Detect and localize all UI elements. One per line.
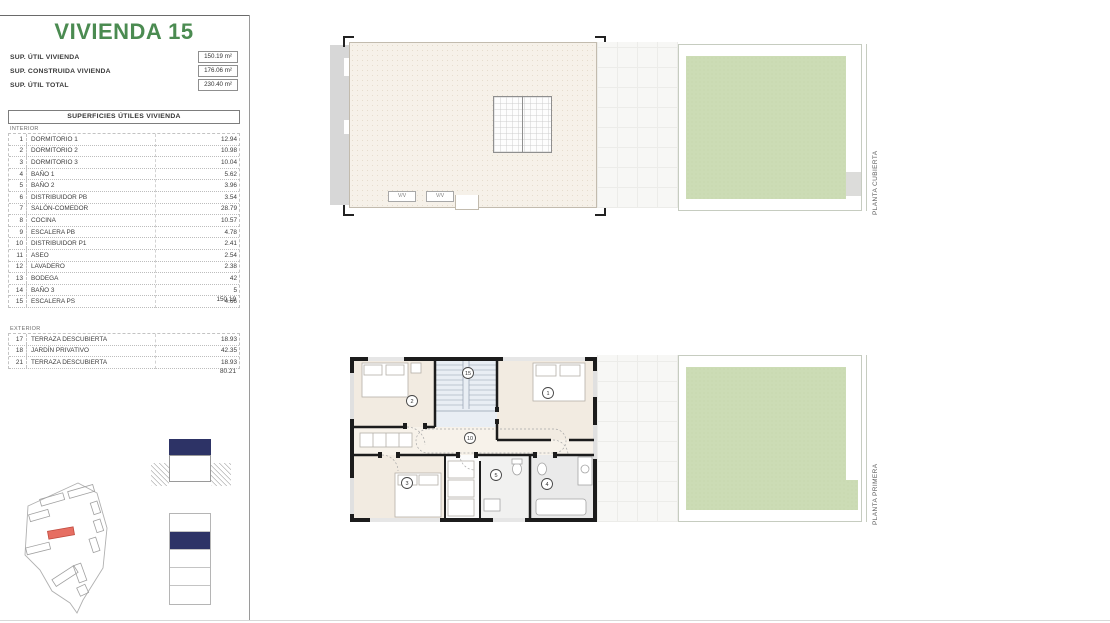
summary-value: 230.40 m² <box>198 79 238 91</box>
table-row: 13BODEGA42 <box>9 273 239 285</box>
section-key-ground-hatch <box>151 463 169 486</box>
side-rail <box>866 355 867 522</box>
terrace-lower <box>597 355 678 522</box>
garden-roof <box>686 56 846 199</box>
roof-plan-label: PLANTA CUBIERTA <box>872 140 879 215</box>
roof-stair-notch <box>455 195 479 210</box>
summary-label: SUP. ÚTIL TOTAL <box>10 82 198 89</box>
bathtub <box>536 499 586 515</box>
table-row: 17TERRAZA DESCUBIERTA18.93 <box>9 334 239 346</box>
table-row: 1DORMITORIO 112.94 <box>9 134 239 146</box>
table-row: 6DISTRIBUIDOR PB3.54 <box>9 192 239 204</box>
table-row: 3DORMITORIO 310.04 <box>9 157 239 169</box>
closet-unit <box>448 499 474 516</box>
corner-tick <box>343 36 354 47</box>
page-title: VIVIENDA 15 <box>0 19 248 45</box>
section-key-floor-block <box>169 455 211 482</box>
exterior-total: 80.21 <box>200 368 238 375</box>
table-row: 8COCINA10.57 <box>9 215 239 227</box>
room-marker-number: 3 <box>405 481 408 487</box>
table-row: 2DORMITORIO 210.98 <box>9 146 239 158</box>
site-boundary <box>25 483 107 613</box>
vent-label: V/V <box>388 191 416 202</box>
sidebar-top-rule <box>0 15 249 16</box>
floor-level-indicator <box>169 513 211 605</box>
roof-plan <box>349 42 597 208</box>
room-marker-number: 5 <box>494 473 497 479</box>
summary-label: SUP. ÚTIL VIVIENDA <box>10 54 198 61</box>
page-bottom-rule <box>0 620 1110 621</box>
room-marker-number: 1 <box>546 391 549 397</box>
terrace-upper <box>597 42 678 208</box>
closet-unit <box>448 461 474 478</box>
closet-unit <box>448 480 474 497</box>
room-marker-number: 15 <box>465 371 471 377</box>
sidebar-divider <box>249 15 250 620</box>
room-marker-number: 10 <box>467 436 473 442</box>
floor-level-current <box>170 532 210 550</box>
toilet <box>538 463 547 475</box>
plan-sheet: VIVIENDA 15 SUP. ÚTIL VIVIENDA 150.19 m²… <box>0 0 1110 623</box>
floor-level <box>170 514 210 532</box>
interior-total-row: 150.19 <box>8 294 238 305</box>
interior-table: 1DORMITORIO 112.94 2DORMITORIO 210.98 3D… <box>8 133 240 308</box>
table-row: 9ESCALERA PB4.78 <box>9 227 239 239</box>
toilet <box>513 463 522 475</box>
room-marker-number: 2 <box>410 399 413 405</box>
table-row: 12LAVADERO2.38 <box>9 262 239 274</box>
interior-total: 150.19 <box>200 296 238 303</box>
table-row: 4BAÑO 15.62 <box>9 169 239 181</box>
summary-row: SUP. ÚTIL VIVIENDA 150.19 m² <box>10 51 238 63</box>
garden-gray-notch <box>846 172 861 196</box>
vent-label: V/V <box>426 191 454 202</box>
summary-label: SUP. CONSTRUIDA VIVIENDA <box>10 68 198 75</box>
section-key-roof-block <box>169 439 211 455</box>
table-row: 11ASEO2.54 <box>9 250 239 262</box>
summary-row: SUP. CONSTRUIDA VIVIENDA 176.06 m² <box>10 65 238 77</box>
exterior-section-label: EXTERIOR <box>10 326 41 332</box>
first-plan-label: PLANTA PRIMERA <box>872 450 879 525</box>
sink <box>484 499 500 511</box>
summary-row: SUP. ÚTIL TOTAL 230.40 m² <box>10 79 238 91</box>
interior-section-label: INTERIOR <box>10 126 39 132</box>
exterior-total-row: 80.21 <box>8 366 238 377</box>
floor-level <box>170 568 210 586</box>
highlighted-unit <box>48 527 75 539</box>
summary-value: 176.06 m² <box>198 65 238 77</box>
table-row: 18JARDÍN PRIVATIVO42.35 <box>9 346 239 358</box>
garden-first <box>686 367 846 510</box>
floor-level <box>170 550 210 568</box>
summary-value: 150.19 m² <box>198 51 238 63</box>
exterior-table: 17TERRAZA DESCUBIERTA18.93 18JARDÍN PRIV… <box>8 333 240 369</box>
floor-level <box>170 586 210 604</box>
site-key-plan <box>12 482 122 622</box>
surfaces-table-header: SUPERFICIES ÚTILES VIVIENDA <box>8 110 240 124</box>
nightstand <box>411 363 421 373</box>
first-floor-plan: 2 15 1 10 3 5 4 <box>350 357 597 522</box>
corner-tick <box>343 205 354 216</box>
room-marker-number: 4 <box>545 482 548 488</box>
section-key-ground-hatch <box>211 463 231 486</box>
side-rail <box>866 44 867 211</box>
skylight-divider <box>522 96 523 153</box>
table-row: 5BAÑO 23.96 <box>9 180 239 192</box>
table-row: 7SALÓN-COMEDOR28.79 <box>9 204 239 216</box>
table-row: 10DISTRIBUIDOR P12.41 <box>9 238 239 250</box>
garden-first-extension <box>846 480 858 510</box>
